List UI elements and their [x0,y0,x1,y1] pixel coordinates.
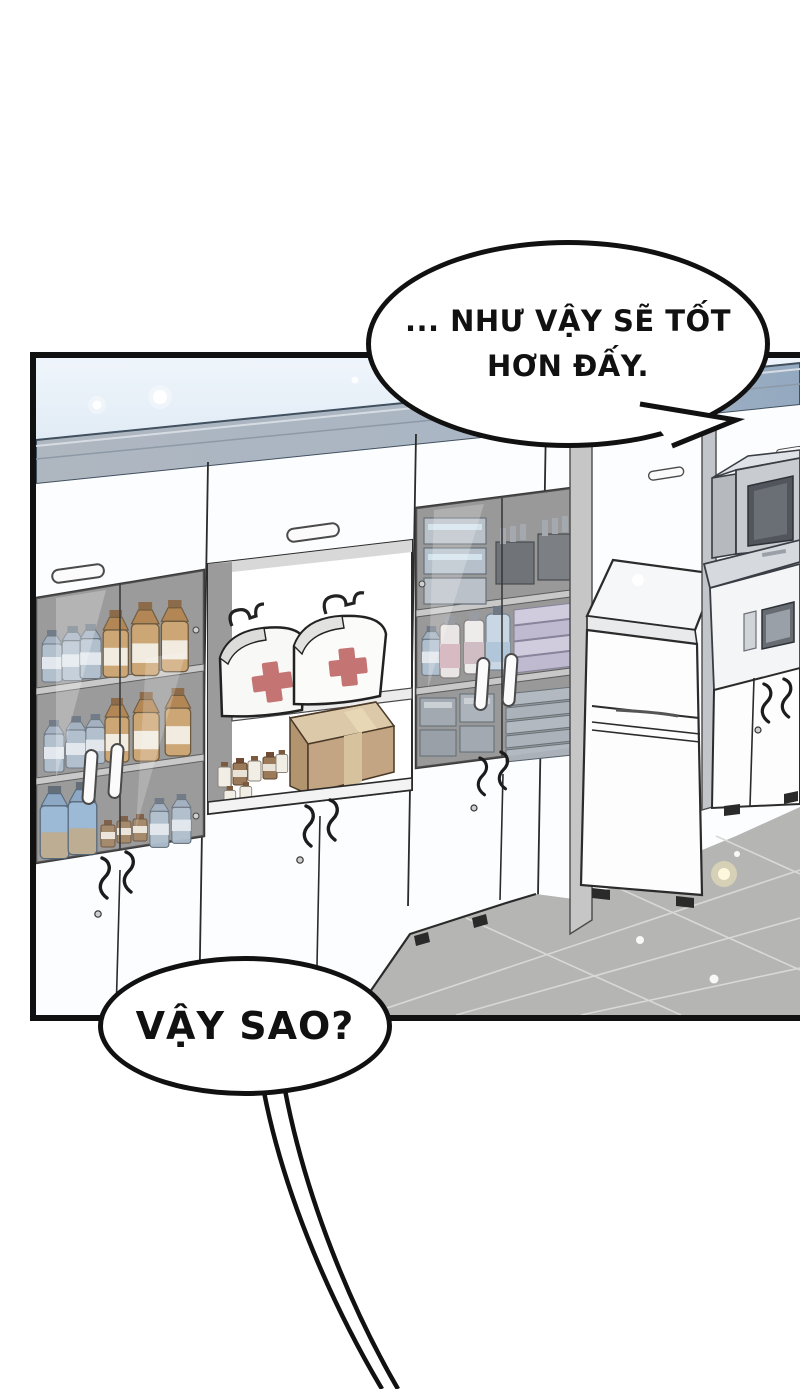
left-glass-cabinet [36,570,204,863]
speech-bubble-bottom: VẬY SAO? [98,956,392,1096]
bottom-bubble-tail [240,1080,410,1389]
right-glass-cabinet [416,486,586,768]
comic-page: ... NHƯ VẬY SẼ TỐT HƠN ĐẤY. VẬY SAO? [0,0,800,1389]
speech-text: VẬY SAO? [136,1004,355,1048]
middle-open-cabinet [208,540,412,814]
right-lower-cabinet [712,668,800,816]
speech-text-line1: ... NHƯ VẬY SẼ TỐT [405,299,731,344]
sterilizer [704,540,800,690]
top-bubble-tail [600,380,760,470]
